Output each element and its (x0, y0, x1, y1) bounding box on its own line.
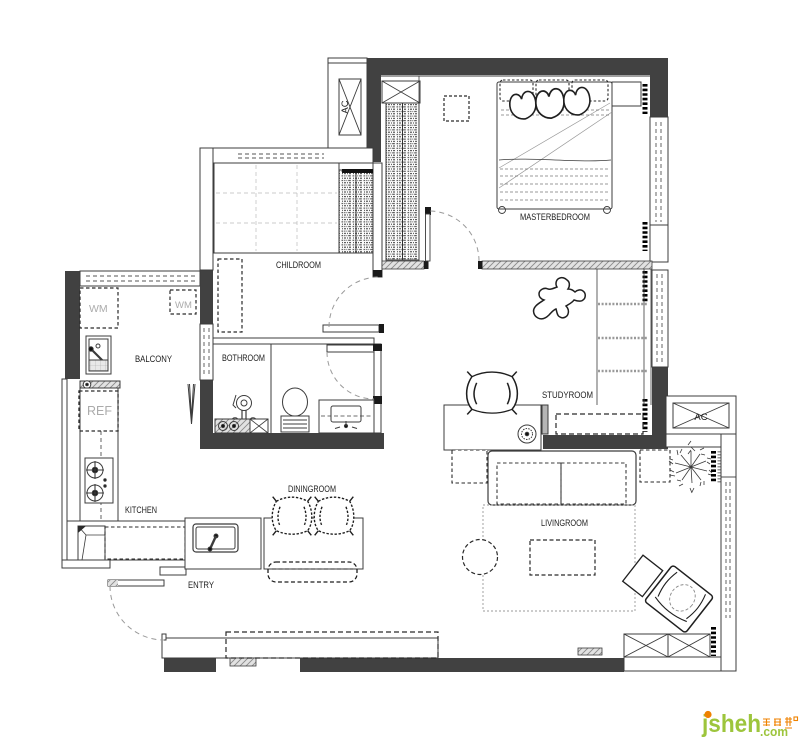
svg-text:.com: .com (760, 725, 788, 739)
svg-text:STUDYROOM: STUDYROOM (542, 390, 593, 401)
svg-text:BALCONY: BALCONY (135, 354, 173, 365)
svg-text:LIVINGROOM: LIVINGROOM (541, 518, 588, 529)
svg-text:BOTHROOM: BOTHROOM (222, 353, 265, 364)
svg-text:WM: WM (175, 300, 192, 311)
svg-text:AC: AC (694, 412, 707, 423)
svg-text:DININGROOM: DININGROOM (288, 484, 336, 495)
svg-text:KITCHEN: KITCHEN (125, 505, 157, 516)
svg-text:REF: REF (87, 404, 112, 418)
svg-text:ENTRY: ENTRY (188, 580, 215, 591)
svg-text:AC: AC (340, 100, 351, 113)
svg-text:MASTERBEDROOM: MASTERBEDROOM (520, 212, 590, 223)
svg-text:CHILDROOM: CHILDROOM (276, 260, 321, 271)
svg-text:WM: WM (89, 303, 108, 315)
